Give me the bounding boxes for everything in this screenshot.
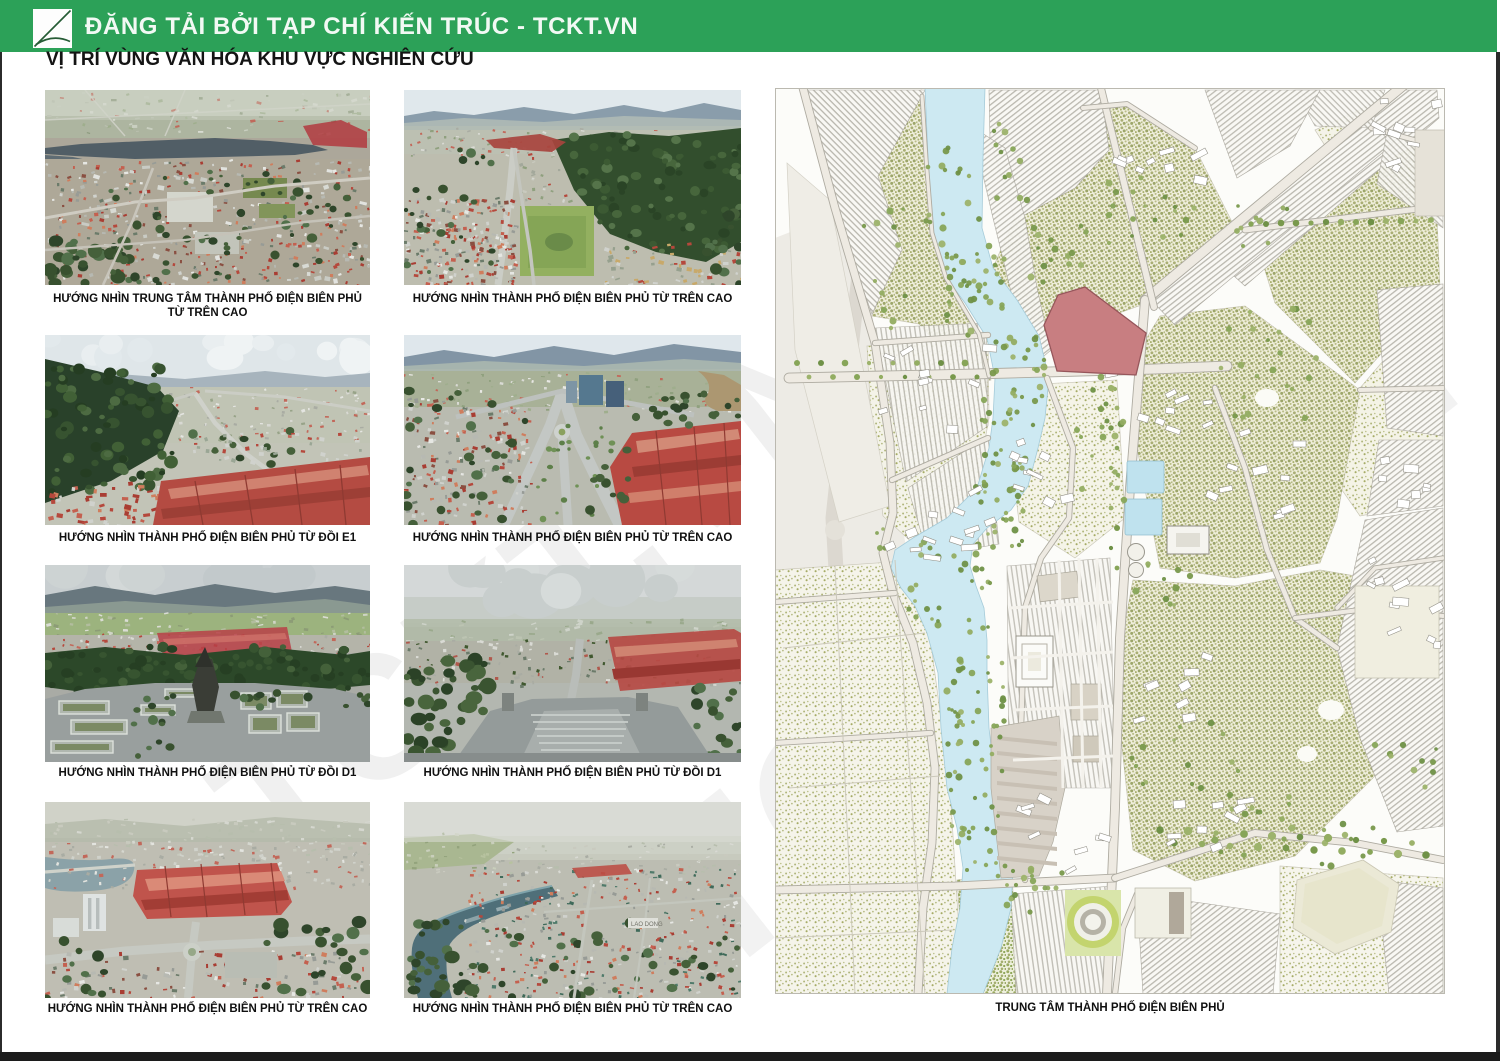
- svg-text:LAO DONG: LAO DONG: [631, 922, 663, 928]
